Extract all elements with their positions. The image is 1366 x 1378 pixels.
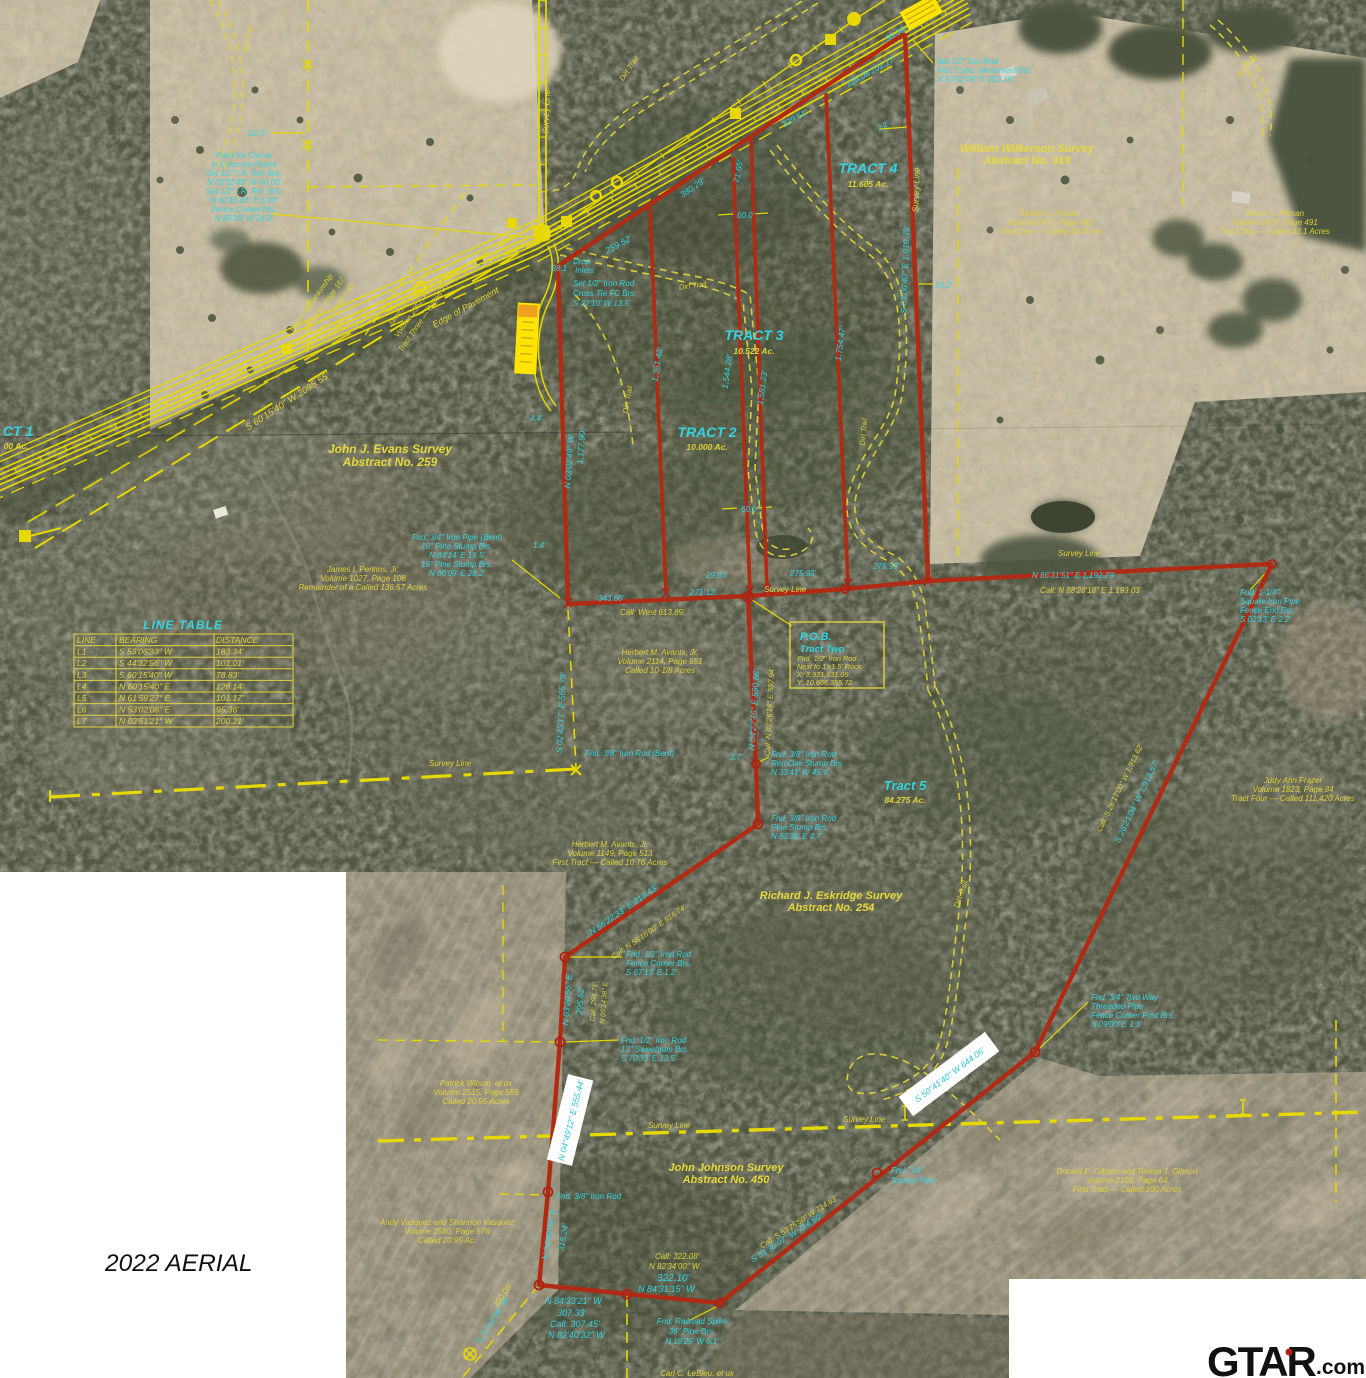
svg-text:Set 1/2" Iron Rod: Set 1/2" Iron Rod [937, 57, 999, 66]
svg-text:295.62': 295.62' [574, 986, 586, 1016]
svg-text:James I. Perkins, Jr.: James I. Perkins, Jr. [326, 565, 399, 574]
svg-text:Survey Line: Survey Line [843, 1115, 886, 1124]
svg-text:N 02'51'21" W: N 02'51'21" W [119, 716, 173, 726]
svg-text:3.7': 3.7' [730, 753, 743, 762]
svg-text:Survey Line: Survey Line [648, 1121, 691, 1130]
svg-text:William Wilkerson Survey: William Wilkerson Survey [960, 143, 1095, 155]
svg-text:Call: N 88'28'18" E 1,193.03': Call: N 88'28'18" E 1,193.03' [1040, 586, 1142, 595]
svg-text:John J. Evans Survey: John J. Evans Survey [328, 442, 453, 456]
svg-text:Square Pipe: Square Pipe [891, 1176, 936, 1185]
svg-text:Y: 10,666,355.72: Y: 10,666,355.72 [797, 678, 852, 687]
svg-text:Pine Stump Brs.: Pine Stump Brs. [771, 823, 829, 832]
svg-text:16" Pine Stump Brs.: 16" Pine Stump Brs. [421, 542, 493, 551]
svg-text:N 53'02'08" E 403.39': N 53'02'08" E 403.39' [937, 75, 1014, 84]
svg-text:'28.1: '28.1 [550, 264, 567, 273]
svg-text:Herbert M. Avants, Jr.: Herbert M. Avants, Jr. [621, 648, 698, 657]
svg-text:Drop: Drop [573, 257, 591, 266]
svg-text:CT 1: CT 1 [3, 423, 34, 439]
svg-text:307.33': 307.33' [557, 1308, 587, 1318]
svg-text:Volume 2114, Page 651: Volume 2114, Page 651 [618, 657, 703, 666]
svg-text:Remainder of a Called 136.67 A: Remainder of a Called 136.67 Acres [299, 583, 428, 592]
svg-text:Herbert M. Avants, Jr.: Herbert M. Avants, Jr. [571, 840, 648, 849]
svg-text:10.000 Ac.: 10.000 Ac. [686, 442, 727, 452]
svg-text:Fnd. 1/2" Iron Rod: Fnd. 1/2" Iron Rod [621, 1036, 687, 1045]
svg-text:Fnd. 1-1/4": Fnd. 1-1/4" [1240, 588, 1280, 597]
svg-text:First Tract — Called 100 Acres: First Tract — Called 100 Acres [1073, 1185, 1181, 1194]
svg-text:Martin L. Pitman: Martin L. Pitman [1021, 209, 1080, 218]
svg-text:L4: L4 [77, 681, 87, 691]
svg-text:LINE TABLE: LINE TABLE [143, 618, 223, 632]
svg-text:N 82'40'32" W: N 82'40'32" W [548, 1330, 606, 1340]
svg-text:343.60': 343.60' [598, 594, 624, 603]
svg-text:Survey Line: Survey Line [910, 167, 922, 212]
svg-text:95.36': 95.36' [216, 705, 239, 715]
svg-text:TRACT 2: TRACT 2 [677, 424, 736, 440]
svg-text:Fence Corner Brs.: Fence Corner Brs. [211, 205, 276, 214]
svg-text:N 60'15'40" E 5.00': N 60'15'40" E 5.00' [210, 196, 278, 205]
svg-text:Tract Two — Called 42.1 Acres: Tract Two — Called 42.1 Acres [1220, 227, 1330, 236]
svg-text:1.4': 1.4' [533, 541, 546, 550]
svg-text:128.14': 128.14' [216, 681, 244, 691]
svg-text:LINE: LINE [77, 635, 96, 645]
svg-text:Abstract No. 919: Abstract No. 919 [983, 155, 1072, 167]
svg-text:Called 10-1/8 Acres: Called 10-1/8 Acres [625, 666, 695, 675]
svg-text:Fnd. 3/4": Fnd. 3/4" [891, 1166, 924, 1175]
svg-text:275.93': 275.93' [789, 569, 816, 578]
svg-text:36" Pine Brs.: 36" Pine Brs. [669, 1327, 715, 1336]
svg-text:Fnd. 3/4" Two Way: Fnd. 3/4" Two Way [1091, 993, 1159, 1002]
svg-text:16" Pine Stump Brs.: 16" Pine Stump Brs. [421, 560, 493, 569]
svg-text:200.21': 200.21' [215, 716, 244, 726]
svg-text:Patrick Wilson, et ux: Patrick Wilson, et ux [440, 1079, 513, 1088]
svg-text:Abstract No. 254: Abstract No. 254 [787, 902, 875, 914]
svg-text:Red Oak Stump Brs.: Red Oak Stump Brs. [771, 759, 844, 768]
svg-text:N 61'59'27" E: N 61'59'27" E [119, 693, 170, 703]
svg-text:Martin L. Pitman: Martin L. Pitman [1246, 209, 1305, 218]
svg-text:Survey Line: Survey Line [540, 89, 552, 134]
svg-text:4.4': 4.4' [530, 414, 543, 423]
svg-text:Fence Corner Brs.: Fence Corner Brs. [626, 959, 691, 968]
svg-text:322.10': 322.10' [657, 1273, 691, 1284]
svg-text:Fnd. 3/4" Iron Pipe (Bent): Fnd. 3/4" Iron Pipe (Bent) [412, 533, 503, 542]
svg-text:N 60'15'40" E: N 60'15'40" E [119, 681, 170, 691]
svg-text:60.0': 60.0' [737, 211, 755, 220]
svg-text:Fnd. Railroad Spike: Fnd. Railroad Spike [657, 1317, 728, 1326]
svg-text:Abstract No. 259: Abstract No. 259 [342, 455, 438, 469]
svg-text:183.34': 183.34' [216, 647, 244, 657]
svg-text:Fnd. 3/8" Iron Rod (Bent): Fnd. 3/8" Iron Rod (Bent) [585, 749, 674, 758]
svg-text:Fnd. 3/8" Iron Rod: Fnd. 3/8" Iron Rod [556, 1192, 622, 1201]
svg-text:Survey Line: Survey Line [764, 585, 807, 594]
svg-text:N 86'31'51" E 1,192.79': N 86'31'51" E 1,192.79' [1032, 571, 1116, 580]
svg-text:Threaded Pipe: Threaded Pipe [1091, 1002, 1144, 1011]
svg-text:29.03': 29.03' [705, 571, 728, 580]
svg-text:L5: L5 [77, 693, 87, 703]
svg-text:Richard J. Eskridge Survey: Richard J. Eskridge Survey [760, 890, 903, 902]
svg-text:Volume 1823, Page 84: Volume 1823, Page 84 [1252, 785, 1334, 794]
svg-text:N 84'33'21" W: N 84'33'21" W [545, 1296, 603, 1306]
svg-text:15.2': 15.2' [935, 281, 953, 290]
svg-text:22.0': 22.0' [247, 129, 266, 138]
svg-text:Set 1/2" I.R. Ref. Brs.: Set 1/2" I.R. Ref. Brs. [206, 169, 282, 178]
svg-text:L7: L7 [77, 716, 87, 726]
svg-text:Survey Line: Survey Line [429, 759, 472, 768]
svg-text:Carl C. LeBleu, et ux: Carl C. LeBleu, et ux [660, 1369, 735, 1378]
svg-text:S 44'32'56" W: S 44'32'56" W [119, 658, 173, 668]
svg-text:Volume 2437, Page 491: Volume 2437, Page 491 [1007, 218, 1093, 227]
svg-text:00 Ac.: 00 Ac. [4, 441, 29, 451]
svg-text:S 32'10' W 13.5': S 32'10' W 13.5' [573, 299, 631, 308]
svg-text:2022 AERIAL: 2022 AERIAL [104, 1250, 253, 1277]
svg-text:Called 20.95 Ac.: Called 20.95 Ac. [418, 1236, 476, 1245]
svg-text:Fnd. Conc. Monument Brs.: Fnd. Conc. Monument Brs. [937, 66, 1033, 75]
svg-text:275.93': 275.93' [872, 562, 899, 571]
svg-text:Tract Four — Called 111,420 Ac: Tract Four — Called 111,420 Acres [1231, 794, 1355, 803]
svg-text:S 02'13' E 2.2': S 02'13' E 2.2' [1240, 615, 1291, 624]
svg-text:S 53'06'33" W: S 53'06'33" W [119, 647, 173, 657]
svg-text:Andy Vasquez and Shannon Vasqu: Andy Vasquez and Shannon Vasquez [379, 1218, 514, 1227]
svg-text:10.522 Ac.: 10.522 Ac. [733, 346, 774, 356]
svg-text:S 09'00' E 1.3': S 09'00' E 1.3' [1091, 1020, 1142, 1029]
svg-text:101.01': 101.01' [216, 658, 244, 668]
svg-text:Volume 1149, Page 513: Volume 1149, Page 513 [568, 849, 654, 858]
svg-text:Inlets: Inlets [575, 266, 594, 275]
svg-text:13" Sweetgum Brs.: 13" Sweetgum Brs. [621, 1045, 689, 1054]
svg-text:Point for Corner: Point for Corner [216, 151, 273, 160]
svg-text:Volume 1027, Page 108: Volume 1027, Page 108 [320, 574, 406, 583]
svg-text:N 84'31'15" W: N 84'31'15" W [638, 1284, 696, 1294]
svg-text:L1: L1 [77, 647, 87, 657]
svg-text:Fence Corner Post Brs.: Fence Corner Post Brs. [1091, 1011, 1175, 1020]
svg-text:P.O.B.: P.O.B. [800, 631, 832, 643]
svg-text:78.83': 78.83' [216, 670, 239, 680]
svg-text:11.605 Ac.: 11.605 Ac. [848, 179, 889, 189]
svg-text:Abstract No. 450: Abstract No. 450 [682, 1174, 771, 1186]
svg-text:Fnd. 1/2" Iron Rod: Fnd. 1/2" Iron Rod [626, 950, 692, 959]
svg-text:.com: .com [1316, 1356, 1365, 1378]
svg-text:N 82'34'00" W: N 82'34'00" W [649, 1262, 701, 1271]
svg-text:N 63'36' E 4.7': N 63'36' E 4.7' [771, 832, 823, 841]
svg-text:N 18'25' W 6.1': N 18'25' W 6.1' [665, 1337, 719, 1346]
svg-text:N 03'02'49" W 40.00': N 03'02'49" W 40.00' [207, 178, 282, 187]
svg-text:Call: 307.45': Call: 307.45' [550, 1319, 600, 1329]
svg-text:Judy Ann Frazer: Judy Ann Frazer [1263, 776, 1323, 785]
svg-text:271.12': 271.12' [689, 588, 716, 597]
svg-text:DISTANCE: DISTANCE [216, 635, 259, 645]
svg-text:84.275 Ac.: 84.275 Ac. [884, 795, 925, 805]
svg-text:Called 20.95 Acres: Called 20.95 Acres [442, 1097, 509, 1106]
svg-text:N 89'29' W 24.8': N 89'29' W 24.8' [215, 214, 273, 223]
svg-text:Set 1/2" I.R. Ref. Brs.: Set 1/2" I.R. Ref. Brs. [206, 187, 282, 196]
svg-text:L2: L2 [77, 658, 87, 668]
svg-text:N 53'02'08" E: N 53'02'08" E [119, 705, 170, 715]
svg-text:60.0': 60.0' [741, 505, 759, 514]
svg-text:Fnd. 3/8" Iron Rod: Fnd. 3/8" Iron Rod [771, 750, 837, 759]
svg-text:TRACT 3: TRACT 3 [724, 327, 783, 343]
svg-text:101.17': 101.17' [216, 693, 244, 703]
svg-text:S 60'15'40" W: S 60'15'40" W [119, 670, 173, 680]
svg-text:Volume 2108, Page 64: Volume 2108, Page 64 [1086, 1176, 1168, 1185]
svg-text:Call: 322.08': Call: 322.08' [655, 1252, 700, 1261]
svg-text:S 70'33' E 13.5': S 70'33' E 13.5' [621, 1054, 677, 1063]
svg-text:N 80'09' E 28.2': N 80'09' E 28.2' [429, 569, 485, 578]
svg-text:Set 1/2" Iron Rod: Set 1/2" Iron Rod [573, 279, 635, 288]
svg-text:Tract 5: Tract 5 [884, 778, 927, 793]
svg-text:Fence End Brs.: Fence End Brs. [1240, 606, 1295, 615]
svg-text:L3: L3 [77, 670, 87, 680]
svg-text:L6: L6 [77, 705, 87, 715]
svg-text:Volume 2580, Page 576: Volume 2580, Page 576 [404, 1227, 490, 1236]
svg-text:TRACT 4: TRACT 4 [838, 160, 897, 176]
svg-text:Fnd. 3/8" Iron Rod: Fnd. 3/8" Iron Rod [771, 814, 837, 823]
svg-text:in Concrete Flume: in Concrete Flume [211, 160, 277, 169]
svg-text:Cross Tie FC Brs.: Cross Tie FC Brs. [573, 289, 637, 298]
svg-text:BEARING: BEARING [119, 635, 158, 645]
svg-text:Square Iron Pipe: Square Iron Pipe [1240, 597, 1301, 606]
svg-text:Survey Line: Survey Line [1058, 549, 1101, 558]
svg-text:First Tract — Called 10.76 Acr: First Tract — Called 10.76 Acres [552, 858, 667, 867]
svg-text:N 33'41' W 45.9': N 33'41' W 45.9' [771, 768, 829, 777]
svg-text:GTAR: GTAR [1207, 1338, 1317, 1378]
svg-text:Call: West 613.89': Call: West 613.89' [620, 608, 685, 617]
svg-text:Volume 2515, Page 559: Volume 2515, Page 559 [433, 1088, 519, 1097]
svg-text:S 67'13' E 1.2': S 67'13' E 1.2' [626, 968, 677, 977]
svg-text:Tract One — Called 40 Acres: Tract One — Called 40 Acres [998, 227, 1102, 236]
svg-text:Donald E. Gibson and Teresa J.: Donald E. Gibson and Teresa J. Gibson [1057, 1167, 1198, 1176]
svg-text:N 84'14' E 19.5': N 84'14' E 19.5' [429, 551, 485, 560]
svg-text:John Johnson Survey: John Johnson Survey [669, 1162, 785, 1174]
svg-text:Volume 2437, Page 491: Volume 2437, Page 491 [1232, 218, 1318, 227]
